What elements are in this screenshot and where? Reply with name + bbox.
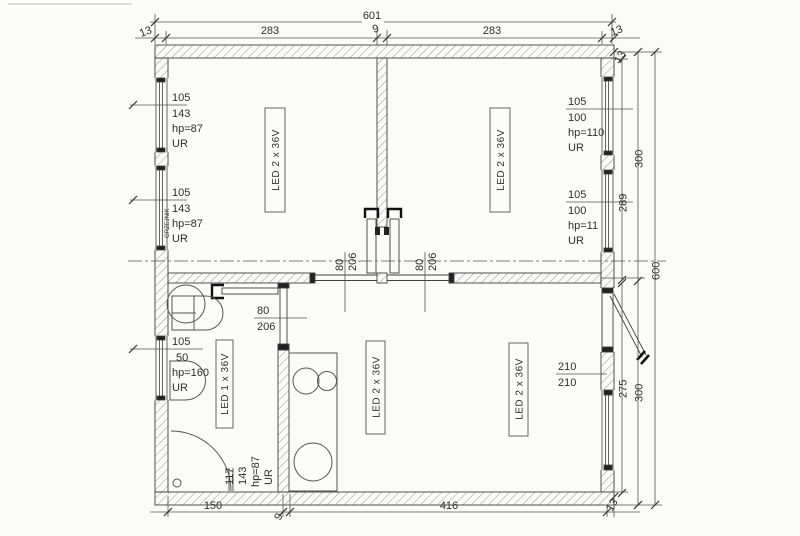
win-bw-width: 117 (224, 467, 236, 485)
win-lb-width: 105 (172, 336, 190, 348)
window-left-top (154, 78, 169, 152)
dim-right-600: 600 (651, 262, 663, 280)
window-left-bottom (154, 336, 169, 400)
win-rt-parapet: hp=110 (568, 127, 604, 139)
led-label-room-top-left: LED 2 x 36V (271, 129, 282, 191)
led-label-bathroom: LED 1 x 36V (220, 353, 231, 415)
win-rt-height: 100 (568, 112, 586, 124)
win-lb-height: 50 (176, 352, 188, 364)
win-lb-type: UR (172, 382, 188, 394)
wall-interior-left (168, 273, 310, 283)
wall-bathroom-partition (278, 350, 289, 492)
dim-top-9: 9 (371, 22, 381, 35)
win-lm-height: 143 (172, 203, 190, 215)
wall-center-vertical (377, 58, 387, 227)
win-lm-parapet: hp=87 (172, 218, 203, 230)
sink-basin-large (293, 368, 319, 394)
radiator-note: GRZEJNIK (165, 208, 171, 238)
door-tl-width: 80 (334, 259, 346, 271)
entrance-door-labels: 210 210 (558, 361, 576, 389)
win-lt-parapet: hp=87 (172, 123, 203, 135)
sink-basin-small (318, 372, 337, 391)
door-tl-height: 206 (347, 253, 359, 271)
dim-bottom-416: 416 (440, 500, 458, 512)
bath-door-width: 80 (257, 305, 269, 317)
dim-total-width: 601 (363, 10, 381, 22)
win-rt-type: UR (568, 142, 584, 154)
door-tr-width: 80 (414, 259, 426, 271)
dim-top-283-right: 283 (483, 25, 501, 37)
win-lt-width: 105 (172, 92, 190, 104)
dim-top-13-right: 13 (609, 23, 625, 38)
dim-bottom-9: 9 (272, 511, 285, 522)
bathroom-door-labels: 80 206 (257, 305, 275, 333)
wall-interior-right (450, 273, 601, 283)
entrance-width: 210 (558, 361, 576, 373)
win-lb-parapet: hp=160 (172, 367, 209, 379)
win-rt-width: 105 (568, 96, 586, 108)
wall-top (155, 45, 614, 58)
win-rm-height: 100 (568, 205, 586, 217)
window-right-top-labels: 105 100 hp=110 UR (568, 96, 604, 154)
dim-right-300-upper: 300 (634, 150, 646, 168)
floor-drain (173, 479, 181, 487)
door-tr-height: 206 (427, 253, 439, 271)
dim-right-275: 275 (618, 380, 630, 398)
window-left-bottom-labels: 105 50 hp=160 UR (172, 336, 209, 394)
bath-door-height: 206 (257, 321, 275, 333)
wall-bottom (155, 492, 614, 505)
win-lm-type: UR (172, 233, 188, 245)
kitchen-unit (289, 353, 337, 491)
entrance-height: 210 (558, 377, 576, 389)
center-wall-cap-right (384, 227, 389, 235)
win-lt-type: UR (172, 138, 188, 150)
shower-door-swing (171, 431, 231, 491)
win-rm-parapet: hp=11 (568, 220, 598, 232)
text-labels: 601 13 283 9 283 13 289 300 600 275 300 … (138, 10, 663, 523)
led-label-room-bottom-b: LED 2 x 36V (515, 358, 526, 420)
window-right-bottom (600, 390, 615, 470)
led-label-room-top-right: LED 2 x 36V (496, 129, 507, 191)
win-bw-type: UR (263, 469, 275, 485)
win-rm-width: 105 (568, 189, 586, 201)
window-right-mid (600, 170, 615, 252)
win-bw-height: 143 (237, 467, 249, 485)
floor-plan-sheet: 601 13 283 9 283 13 289 300 600 275 300 … (0, 0, 800, 536)
win-bw-parapet: hp=87 (250, 456, 262, 487)
win-rm-type: UR (568, 235, 584, 247)
center-wall-cap-left (375, 227, 380, 235)
floor-plan-drawing: 601 13 283 9 283 13 289 300 600 275 300 … (0, 0, 800, 536)
wall-interior-junction (377, 273, 387, 283)
appliance-circle (294, 443, 332, 481)
dim-right-289: 289 (618, 194, 630, 212)
window-right-mid-labels: 105 100 hp=11 UR (568, 189, 598, 247)
led-label-room-bottom-a: LED 2 x 36V (372, 356, 383, 418)
dim-bottom-150: 150 (204, 500, 222, 512)
dim-right-300-lower: 300 (634, 384, 646, 402)
window-left-mid-labels: 105 143 hp=87 UR GRZEJNIK (165, 187, 203, 245)
toilet-tank (167, 285, 205, 323)
dim-top-13-left: 13 (138, 24, 154, 39)
win-lm-width: 105 (172, 187, 190, 199)
window-right-top (600, 77, 615, 155)
walls (155, 45, 614, 505)
dim-top-283-left: 283 (261, 25, 279, 37)
win-lt-height: 143 (172, 108, 190, 120)
window-left-top-labels: 105 143 hp=87 UR (172, 92, 203, 150)
